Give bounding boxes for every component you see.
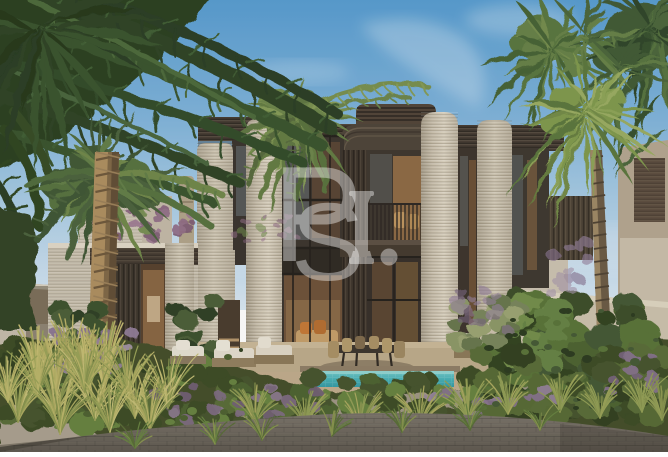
svg-text:S: S: [291, 181, 364, 304]
